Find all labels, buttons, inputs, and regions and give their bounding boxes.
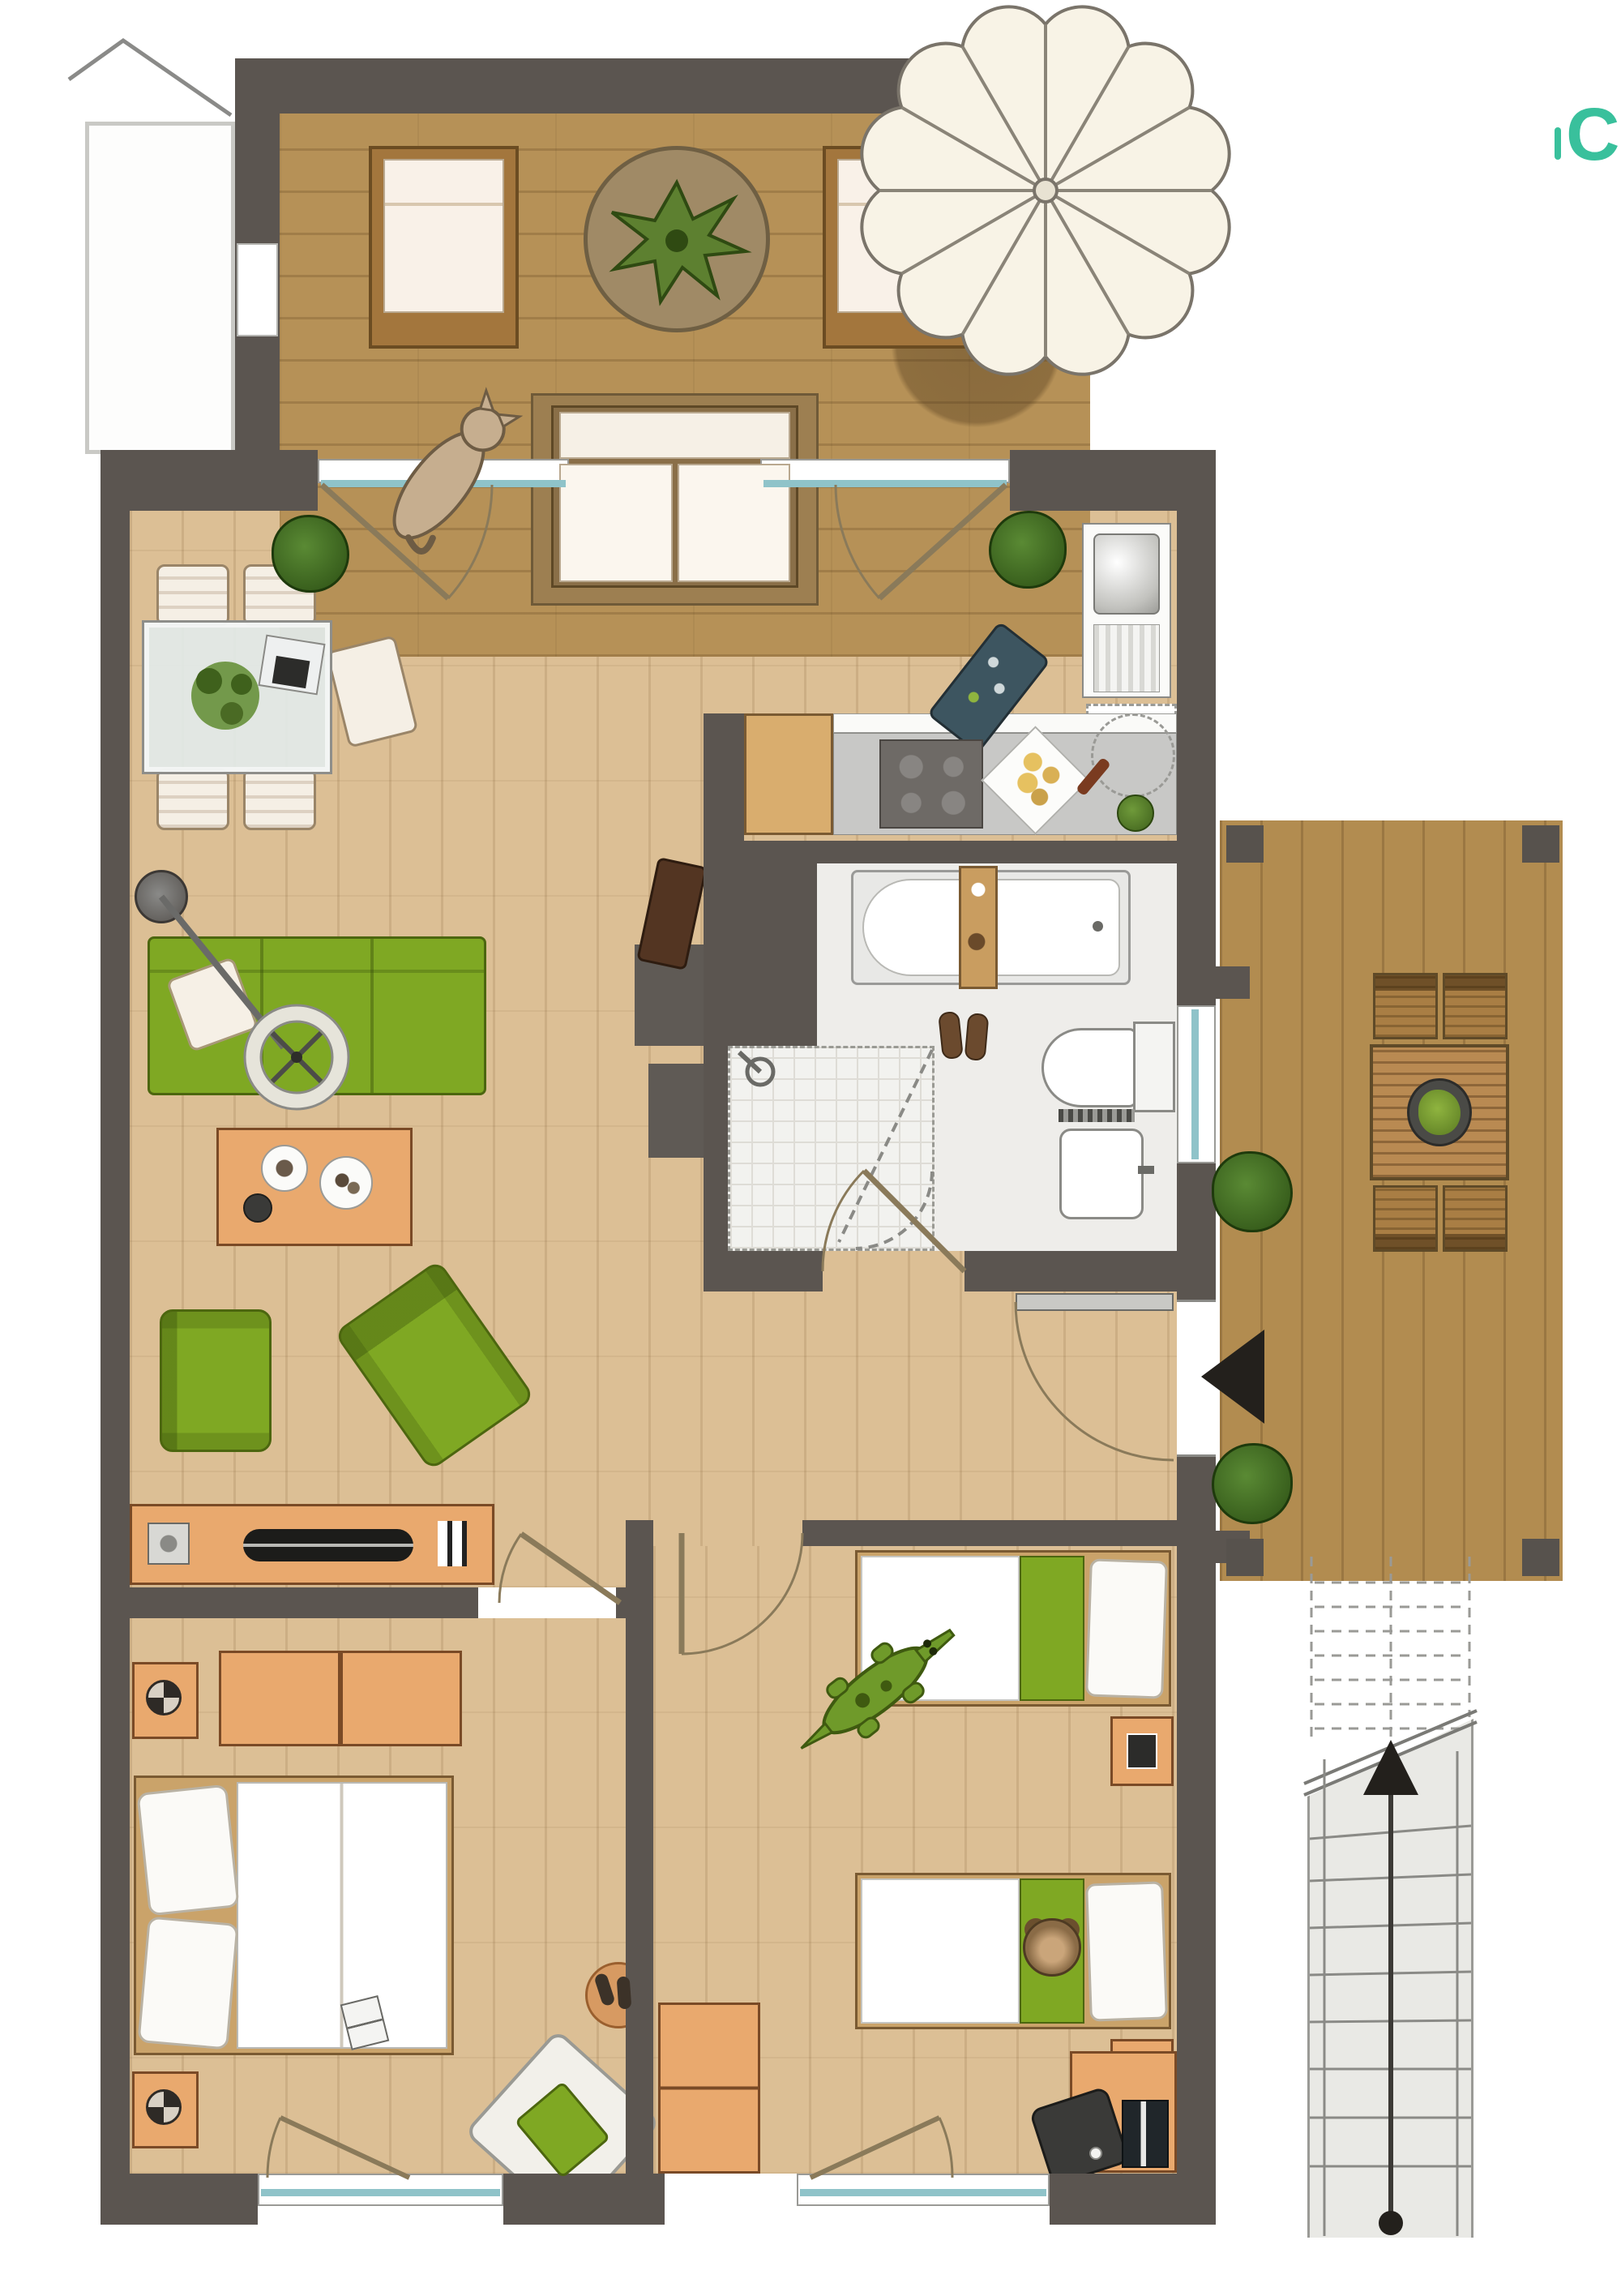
tv-speaker xyxy=(148,1523,190,1565)
roof-mark xyxy=(69,41,231,115)
terrace-plant-right xyxy=(989,511,1067,589)
coffee-table xyxy=(216,1128,413,1246)
lamp-base xyxy=(135,870,188,923)
deck-window-glass xyxy=(1191,1009,1199,1159)
deck-attach-tab-top xyxy=(1216,966,1250,999)
master-window-glass xyxy=(261,2189,500,2196)
kids-desk-knob xyxy=(1089,2147,1102,2160)
kitchen-sink-basin xyxy=(1093,533,1160,615)
terrace-door-1-glass xyxy=(321,480,566,487)
deck-chair-3 xyxy=(1373,1185,1438,1252)
entrance-opening xyxy=(1177,1300,1216,1457)
floorplan-page: { "logo": { "text": "C" }, "colors": { "… xyxy=(0,0,1621,2296)
toilet-tank xyxy=(1133,1022,1175,1112)
master-top-wall-stub xyxy=(616,1587,653,1618)
dining-chair-1 xyxy=(156,564,229,626)
master-dresser xyxy=(219,1651,462,1746)
kids-window-glass xyxy=(800,2189,1046,2196)
kids-bed-2-duvet xyxy=(861,1878,1020,2024)
shower xyxy=(728,1046,935,1251)
stairs-upper-dashed xyxy=(1311,1557,1469,1743)
top-wall-pier-left xyxy=(101,450,318,511)
dining-chair-3 xyxy=(156,769,229,830)
bottom-wall-left xyxy=(101,2174,258,2225)
deck-bush-1 xyxy=(1212,1151,1293,1232)
coffee-plate-1 xyxy=(261,1145,308,1192)
teddy-bear xyxy=(1023,1918,1081,1977)
cooktop xyxy=(879,739,983,829)
sun-lounger-1-pad xyxy=(383,159,504,313)
tv-screen xyxy=(243,1529,413,1561)
kids-bed-2-pillow xyxy=(1085,1881,1168,2021)
basin-faucet xyxy=(1138,1166,1154,1174)
brand-logo-letter: C xyxy=(1566,93,1619,176)
master-lamp-1 xyxy=(146,1680,182,1716)
kids-desk-laptop xyxy=(1122,2100,1169,2168)
deck-table-plant xyxy=(1418,1090,1461,1135)
towel-radiator xyxy=(1059,1109,1135,1122)
left-exterior-wall xyxy=(101,450,130,2225)
coffee-plate-2 xyxy=(319,1156,373,1210)
master-lamp-2 xyxy=(146,2089,182,2125)
kids-bed-1-blanket xyxy=(1020,1556,1084,1701)
divider-wall-top-stub xyxy=(626,1520,653,1546)
terrace-top-wall xyxy=(235,58,1090,114)
master-top-wall xyxy=(130,1587,478,1618)
bath-bottom-wall-left xyxy=(704,1251,823,1291)
terrace-plant-left xyxy=(272,515,349,593)
rug-slipper-2 xyxy=(617,1976,632,2009)
herb-pot xyxy=(1117,795,1154,832)
kids-top-wall xyxy=(802,1520,1177,1546)
right-wall-lower xyxy=(1177,1457,1216,2225)
tub-tray xyxy=(959,866,998,989)
bath-corner-block xyxy=(728,863,817,1046)
dishwasher-dashed-circle xyxy=(1091,713,1175,798)
kids-wardrobe xyxy=(658,2003,760,2174)
coffee-cup xyxy=(243,1193,272,1223)
kids-bed-1-pillow xyxy=(1085,1558,1168,1698)
bath-top-wall xyxy=(704,841,1177,863)
stairs-lower-flight xyxy=(1307,1719,1473,2238)
entrance-door-leaf xyxy=(1016,1293,1174,1311)
master-pillow-1 xyxy=(136,1784,239,1917)
terrace-round-rug xyxy=(584,146,770,332)
wash-basin xyxy=(1059,1129,1144,1219)
master-pillow-2 xyxy=(137,1916,238,2050)
neighbor-terrace xyxy=(85,122,235,454)
tv-books xyxy=(438,1521,473,1566)
deck-bush-2 xyxy=(1212,1443,1293,1524)
brand-logo-tick xyxy=(1555,127,1561,160)
bathtub-drain xyxy=(1093,921,1103,932)
bottom-wall-mid xyxy=(503,2174,665,2225)
dark-cabinet-block-b xyxy=(648,1064,704,1158)
bath-bottom-wall-right xyxy=(964,1251,1177,1291)
deck-chair-1 xyxy=(1373,973,1438,1039)
bath-slipper-2 xyxy=(964,1013,990,1061)
armchair-1 xyxy=(160,1309,272,1452)
kitchen-drainboard xyxy=(1093,624,1160,692)
deck-post-ne xyxy=(1522,825,1559,863)
right-wall-upper xyxy=(1177,450,1216,1005)
kitchen-wood-worktop xyxy=(744,713,833,835)
deck-post-se xyxy=(1522,1539,1559,1576)
bedroom-divider-wall xyxy=(626,1546,653,2174)
deck-chair-2 xyxy=(1443,973,1508,1039)
bath-left-wall xyxy=(704,863,728,1251)
kids-bed-1-duvet xyxy=(861,1556,1020,1701)
deck-post-sw xyxy=(1226,1539,1264,1576)
toilet-bowl xyxy=(1041,1028,1137,1107)
terrace-door-2-glass xyxy=(763,480,1007,487)
brand-logo: C xyxy=(1555,97,1619,172)
outdoor-sofa-back xyxy=(559,412,790,459)
deck-chair-4 xyxy=(1443,1185,1508,1252)
dining-chair-4 xyxy=(243,769,316,830)
terrace-wall-window xyxy=(237,243,278,336)
kitchen-pillar xyxy=(704,713,744,841)
laptop-screen xyxy=(272,656,310,688)
sun-lounger-2-pad xyxy=(837,159,958,313)
outdoor-sofa-seat-1 xyxy=(559,464,673,582)
right-wall-mid xyxy=(1177,1163,1216,1300)
kids-nightstand-1-item xyxy=(1127,1733,1157,1769)
bottom-wall-right xyxy=(1050,2174,1216,2225)
deck-post-nw xyxy=(1226,825,1264,863)
